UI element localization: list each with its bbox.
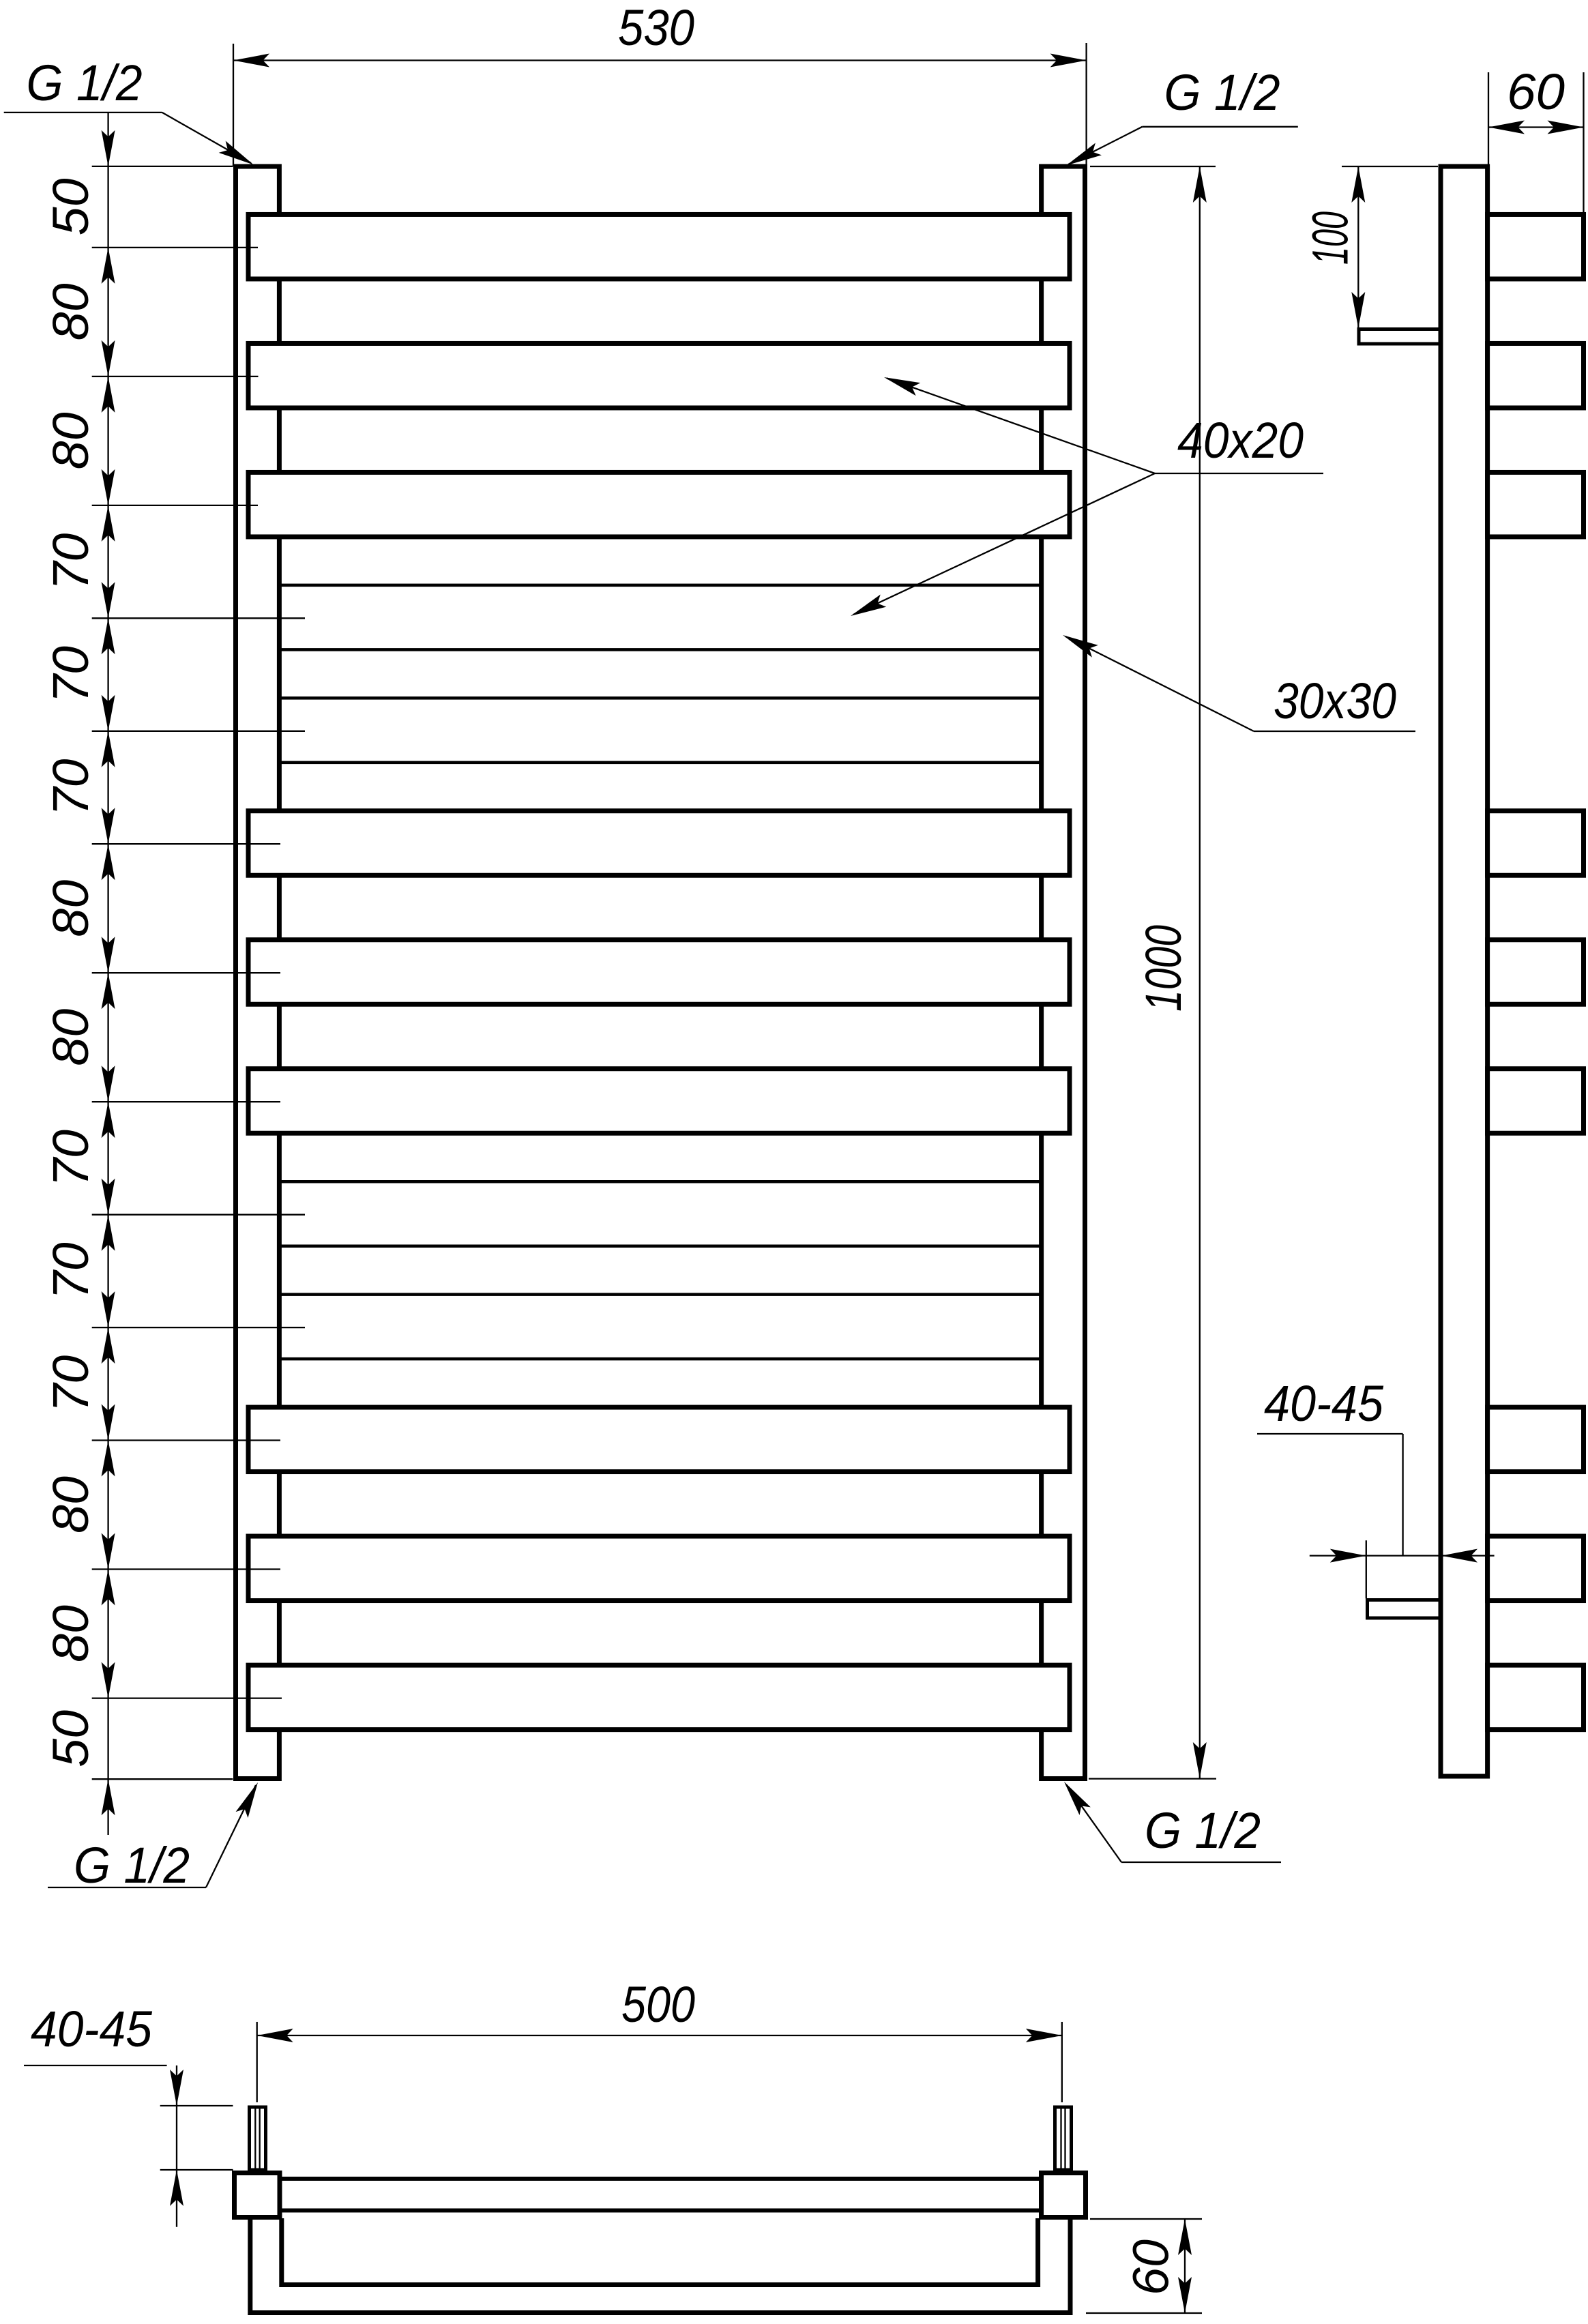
svg-text:70: 70 — [42, 1355, 99, 1413]
svg-text:80: 80 — [42, 880, 99, 937]
svg-text:80: 80 — [42, 412, 99, 469]
svg-text:60: 60 — [1507, 63, 1565, 120]
svg-text:80: 80 — [42, 283, 99, 340]
svg-text:70: 70 — [42, 1242, 99, 1299]
svg-text:70: 70 — [42, 646, 99, 703]
svg-text:60: 60 — [1123, 2239, 1179, 2295]
svg-text:G 1/2: G 1/2 — [27, 55, 143, 111]
svg-text:70: 70 — [42, 1130, 99, 1187]
svg-text:1000: 1000 — [1135, 925, 1192, 1012]
svg-text:80: 80 — [42, 1476, 99, 1533]
svg-text:G 1/2: G 1/2 — [1145, 1802, 1261, 1859]
svg-text:530: 530 — [618, 0, 694, 56]
svg-text:80: 80 — [42, 1605, 99, 1662]
svg-text:50: 50 — [42, 178, 99, 235]
svg-text:500: 500 — [621, 1976, 695, 2033]
svg-text:40x20: 40x20 — [1177, 412, 1304, 469]
svg-text:50: 50 — [42, 1710, 99, 1767]
svg-text:80: 80 — [42, 1009, 99, 1066]
svg-text:G 1/2: G 1/2 — [1164, 64, 1280, 121]
svg-text:30x30: 30x30 — [1274, 673, 1396, 729]
svg-text:40-45: 40-45 — [31, 2001, 153, 2057]
svg-text:70: 70 — [42, 759, 99, 817]
svg-text:100: 100 — [1302, 211, 1359, 265]
svg-text:40-45: 40-45 — [1264, 1375, 1384, 1432]
svg-text:70: 70 — [42, 533, 99, 591]
svg-text:G 1/2: G 1/2 — [74, 1837, 190, 1894]
